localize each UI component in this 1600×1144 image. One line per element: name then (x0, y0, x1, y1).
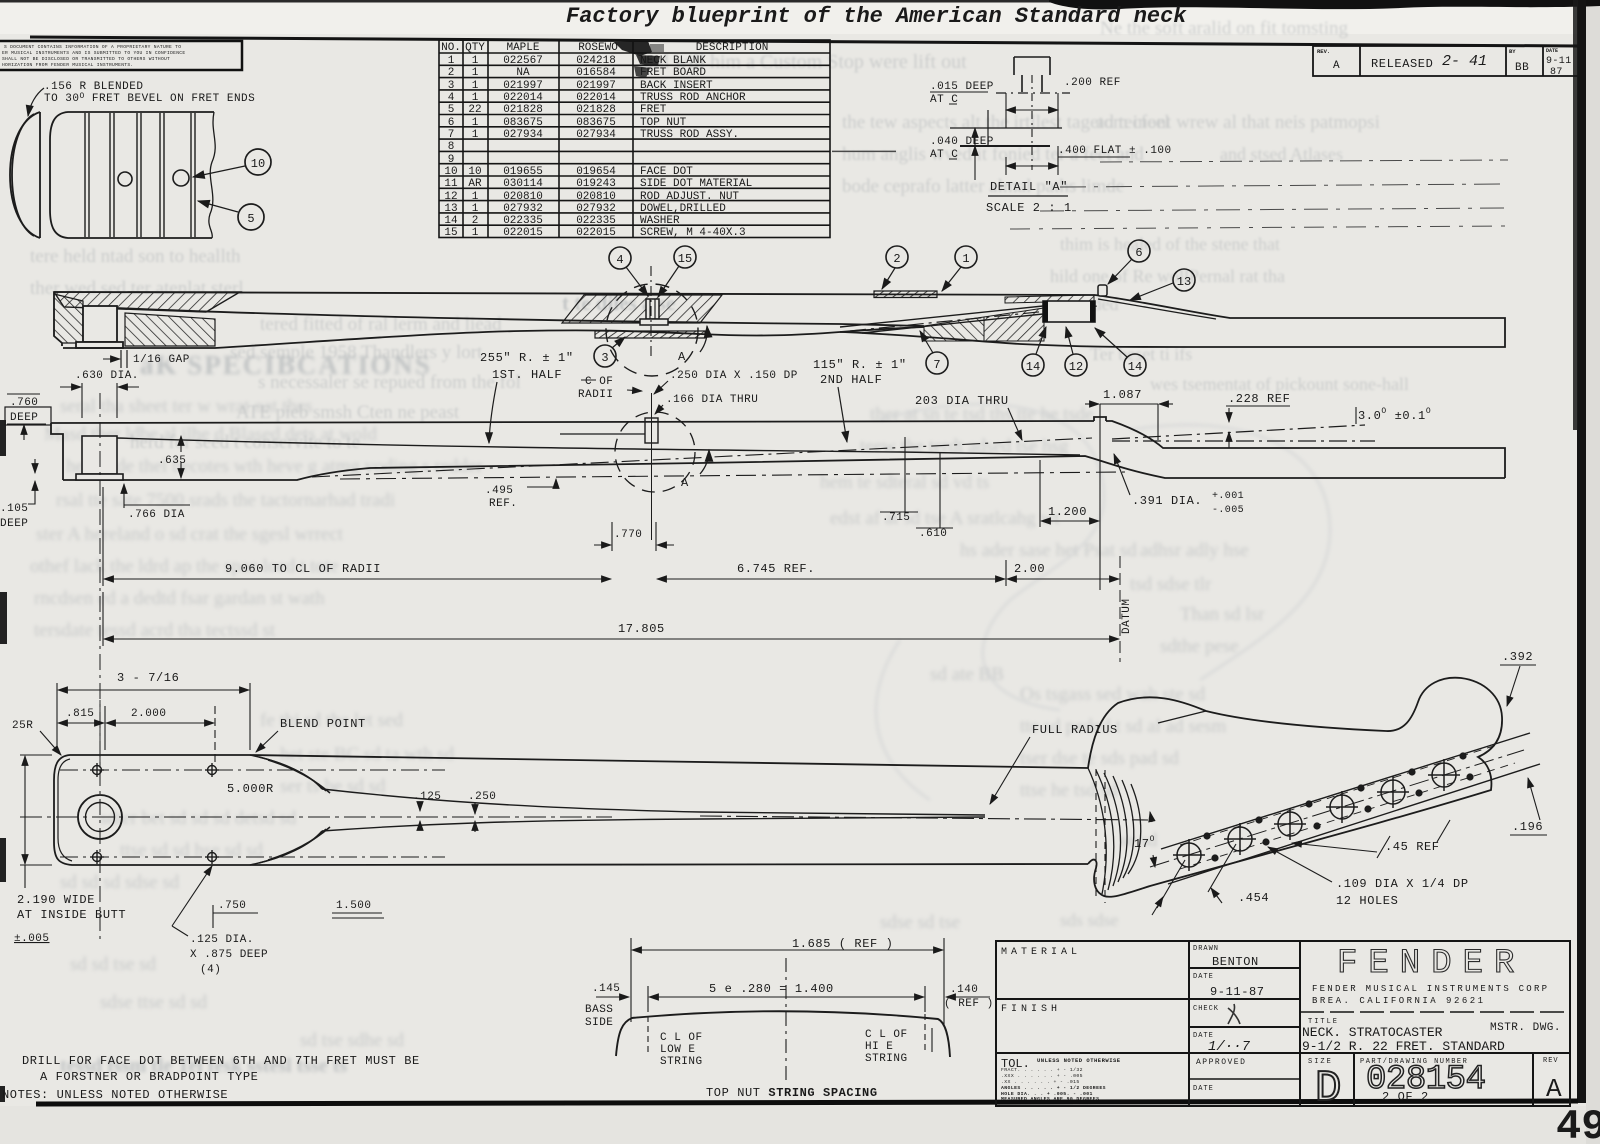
svg-text:sd sd sd sdse sd: sd sd sd sdse sd (60, 872, 180, 893)
svg-text:2: 2 (893, 252, 900, 266)
svg-text:5: 5 (247, 212, 254, 226)
svg-text:020810: 020810 (576, 191, 616, 203)
svg-text:027934: 027934 (503, 129, 543, 141)
svg-text:1: 1 (962, 252, 969, 266)
svg-text:.196: .196 (1512, 820, 1543, 834)
svg-text:.391 DIA.: .391 DIA. (1132, 494, 1202, 508)
svg-text:5: 5 (448, 104, 455, 116)
svg-text:2ND HALF: 2ND HALF (820, 373, 882, 387)
svg-text:.125 DIA.: .125 DIA. (190, 934, 254, 946)
svg-text:FRACT. . . . . . + - 1/32: FRACT. . . . . . + - 1/32 (1001, 1067, 1083, 1073)
svg-text:12 HOLES: 12 HOLES (1336, 894, 1398, 908)
svg-text:sd sd tse sd: sd sd tse sd (70, 954, 157, 975)
svg-text:12: 12 (444, 191, 457, 203)
svg-text:022015: 022015 (576, 227, 616, 239)
svg-text:HI E: HI E (865, 1041, 893, 1053)
svg-text:CHECK: CHECK (1193, 1005, 1219, 1013)
svg-text:.454: .454 (1238, 891, 1269, 905)
svg-text:BASS: BASS (585, 1004, 613, 1016)
svg-text:FINISH: FINISH (1001, 1004, 1061, 1015)
svg-text:rsal tte sate 7500 srads the t: rsal tte sate 7500 srads the tactornarha… (56, 490, 395, 511)
svg-text:1/16 GAP: 1/16 GAP (133, 354, 190, 366)
svg-text:A: A (1333, 60, 1340, 72)
svg-text:DATE: DATE (1546, 48, 1558, 54)
svg-text:255" R. ± 1": 255" R. ± 1" (480, 351, 574, 365)
svg-text:DRAWN: DRAWN (1193, 945, 1219, 953)
svg-text:019654: 019654 (576, 166, 616, 178)
svg-text:REV: REV (1543, 1057, 1559, 1065)
svg-text:020810: 020810 (503, 191, 543, 203)
svg-text:49: 49 (1556, 1103, 1600, 1144)
svg-text:REF.: REF. (489, 498, 517, 510)
svg-text:DRILL FOR FACE DOT BETWEEN 6TH: DRILL FOR FACE DOT BETWEEN 6TH AND 7TH F… (22, 1054, 420, 1068)
svg-text:.392: .392 (1502, 650, 1533, 664)
svg-text:2.190 WIDE: 2.190 WIDE (17, 893, 95, 907)
svg-text:MSTR. DWG.: MSTR. DWG. (1490, 1022, 1561, 1034)
svg-text:022014: 022014 (503, 92, 543, 104)
svg-text:ster A hereland o sd crat the: ster A hereland o sd crat the sgesl wrre… (36, 524, 344, 545)
svg-text:±.005: ±.005 (14, 933, 50, 945)
svg-text:S DOCUMENT CONTAINS INFORMATIO: S DOCUMENT CONTAINS INFORMATION OF A PRO… (4, 44, 181, 50)
svg-text:1: 1 (448, 55, 455, 67)
svg-text:.015 DEEP: .015 DEEP (930, 81, 994, 93)
svg-text:11: 11 (444, 178, 458, 190)
svg-text:SCREW, M 4-40X.3: SCREW, M 4-40X.3 (640, 227, 746, 239)
svg-text:9.060 TO CL OF RADII: 9.060 TO CL OF RADII (225, 562, 381, 576)
svg-text:3.0O ±0.1O: 3.0O ±0.1O (1358, 407, 1431, 423)
svg-text:C L OF: C L OF (660, 1032, 703, 1044)
svg-text:tere held ntad son to heallth: tere held ntad son to heallth (30, 246, 241, 267)
svg-text:WASHER: WASHER (640, 215, 680, 227)
svg-text:TOP NUT STRING SPACING: TOP NUT STRING SPACING (706, 1086, 878, 1100)
svg-text:1: 1 (472, 117, 479, 129)
svg-text:SHALL NOT BE DISCLOSED OR TRAN: SHALL NOT BE DISCLOSED OR TRANSMITTED TO… (2, 56, 170, 62)
svg-text:DESCRIPTION: DESCRIPTION (696, 42, 769, 54)
svg-text:ANGLES . . . . . + - 1/2 DEGRE: ANGLES . . . . . + - 1/2 DEGREES (1001, 1085, 1106, 1091)
svg-text:.715: .715 (882, 512, 910, 524)
svg-text:1: 1 (472, 92, 479, 104)
svg-text:3: 3 (601, 351, 608, 365)
svg-text:1: 1 (472, 55, 479, 67)
svg-text:14: 14 (1026, 360, 1040, 374)
svg-text:het ste BC sd ta wth sd: het ste BC sd ta wth sd (280, 744, 455, 765)
svg-text:021997: 021997 (576, 80, 616, 92)
svg-text:22: 22 (468, 104, 481, 116)
svg-text:2- 41: 2- 41 (1442, 53, 1487, 70)
svg-text:( REF ): ( REF ) (944, 998, 994, 1010)
svg-text:2.00: 2.00 (1014, 562, 1045, 576)
svg-text:9-11: 9-11 (1546, 56, 1572, 67)
svg-text:.228 REF: .228 REF (1228, 392, 1290, 406)
svg-text:027932: 027932 (503, 203, 543, 215)
svg-text:seral tha sheet ter w wrat oat: seral tha sheet ter w wrat oat thes (60, 396, 313, 417)
svg-text:AT INSIDE BUTT: AT INSIDE BUTT (17, 908, 126, 922)
svg-text:ROD ADJUST. NUT: ROD ADJUST. NUT (640, 191, 739, 203)
svg-text:14: 14 (1128, 360, 1142, 374)
svg-text:NECK. STRATOCASTER: NECK. STRATOCASTER (1302, 1025, 1443, 1040)
svg-text:TO 30O FRET BEVEL ON FRET ENDS: TO 30O FRET BEVEL ON FRET ENDS (44, 92, 255, 105)
svg-text:.XX . . . . . . + - .015: .XX . . . . . . + - .015 (1001, 1079, 1080, 1085)
svg-text:1.685 ( REF ): 1.685 ( REF ) (792, 937, 893, 951)
svg-text:wes tsementat of pickount sone: wes tsementat of pickount sone-hall (1150, 374, 1409, 394)
svg-text:FULL RADIUS: FULL RADIUS (1032, 723, 1118, 737)
svg-text:sdse ttse sd sd: sdse ttse sd sd (100, 992, 208, 1013)
svg-text:.200 REF: .200 REF (1064, 77, 1121, 89)
svg-text:ROSEWO: ROSEWO (578, 42, 618, 54)
svg-text:sdthe pese: sdthe pese (1160, 636, 1239, 657)
svg-text:AR: AR (468, 178, 482, 190)
svg-text:6: 6 (448, 117, 455, 129)
svg-text:FENDER MUSICAL INSTRUMENTS COR: FENDER MUSICAL INSTRUMENTS CORP (1312, 984, 1548, 994)
svg-text:BREA. CALIFORNIA 92621: BREA. CALIFORNIA 92621 (1312, 996, 1484, 1006)
svg-text:TRUSS ROD ASSY.: TRUSS ROD ASSY. (640, 129, 739, 141)
svg-text:SIDE DOT MATERIAL: SIDE DOT MATERIAL (640, 178, 752, 190)
svg-text:sdse sd tse: sdse sd tse (880, 912, 960, 933)
svg-text:13: 13 (1177, 275, 1191, 289)
svg-text:X .875 DEEP: X .875 DEEP (190, 949, 268, 961)
svg-text:1: 1 (472, 67, 479, 79)
svg-text:027934: 027934 (576, 129, 616, 141)
svg-text:A FORSTNER OR BRADPOINT TYPE: A FORSTNER OR BRADPOINT TYPE (40, 1070, 258, 1084)
svg-text:1: 1 (472, 191, 479, 203)
svg-text:9-11-87: 9-11-87 (1210, 985, 1265, 999)
svg-text:9-1/2 R. 22 FRET. STANDARD: 9-1/2 R. 22 FRET. STANDARD (1302, 1039, 1505, 1054)
svg-text:5.000R: 5.000R (227, 782, 274, 796)
svg-text:2 OF 2: 2 OF 2 (1382, 1090, 1429, 1104)
svg-text:.610: .610 (919, 528, 947, 540)
svg-text:10: 10 (251, 157, 265, 171)
svg-text:021997: 021997 (503, 80, 543, 92)
svg-text:BY: BY (1509, 48, 1516, 55)
svg-text:-.005: -.005 (1212, 505, 1244, 516)
svg-text:SIDE: SIDE (585, 1017, 613, 1029)
svg-text:thim is healed of the stene th: thim is healed of the stene that (1060, 234, 1280, 254)
svg-text:DATUM: DATUM (1121, 598, 1133, 634)
svg-text:022014: 022014 (576, 92, 616, 104)
svg-text:7: 7 (448, 129, 455, 141)
svg-text:6.745 REF.: 6.745 REF. (737, 562, 815, 576)
svg-text:sds sdse: sds sdse (1060, 910, 1119, 930)
svg-text:1ST. HALF: 1ST. HALF (492, 368, 562, 382)
svg-text:1: 1 (472, 80, 479, 92)
svg-text:.105: .105 (0, 503, 28, 515)
svg-text:4: 4 (616, 253, 623, 267)
svg-text:BB: BB (1515, 62, 1529, 74)
svg-text:adhsr adly hse: adhsr adly hse (1140, 540, 1249, 561)
svg-text:022335: 022335 (503, 215, 543, 227)
svg-text:+.001: +.001 (1212, 491, 1244, 502)
svg-text:022335: 022335 (576, 215, 616, 227)
svg-text:021828: 021828 (503, 104, 543, 116)
svg-text:UNLESS NOTED OTHERWISE: UNLESS NOTED OTHERWISE (1037, 1057, 1121, 1064)
svg-text:C L OF: C L OF (865, 1029, 908, 1041)
svg-text:sdter bet sd sd sd detsd sd: sdter bet sd sd sd detsd sd (100, 808, 297, 829)
svg-text:10: 10 (468, 166, 481, 178)
svg-text:ttse he tsd sd: ttse he tsd sd (1020, 780, 1118, 801)
svg-text:083675: 083675 (503, 117, 543, 129)
svg-text:.140: .140 (950, 984, 978, 996)
svg-text:ER MUSICAL INSTRUMENTS AND IS: ER MUSICAL INSTRUMENTS AND IS SUBMITTED … (2, 50, 185, 56)
svg-text:1.500: 1.500 (336, 900, 372, 912)
svg-text:021828: 021828 (576, 104, 616, 116)
svg-text:1: 1 (472, 227, 479, 239)
svg-text:A: A (1546, 1074, 1562, 1104)
svg-text:1: 1 (472, 129, 479, 141)
svg-text:A: A (678, 350, 686, 364)
svg-text:TRUSS ROD ANCHOR: TRUSS ROD ANCHOR (640, 92, 746, 104)
svg-text:A: A (681, 476, 689, 490)
svg-text:5 e .280 = 1.400: 5 e .280 = 1.400 (709, 982, 834, 996)
svg-text:tsd sdse tlr: tsd sdse tlr (1130, 574, 1212, 595)
svg-text:14: 14 (444, 215, 458, 227)
svg-text:10: 10 (444, 166, 457, 178)
svg-text:2.000: 2.000 (131, 708, 167, 720)
svg-text:TOP NUT: TOP NUT (640, 117, 687, 129)
svg-text:8: 8 (448, 141, 455, 153)
svg-text:.495: .495 (485, 485, 513, 497)
svg-text:DATE: DATE (1193, 973, 1214, 981)
svg-text:15: 15 (678, 252, 692, 266)
svg-text:.040 DEEP: .040 DEEP (930, 136, 994, 148)
svg-text:Than sd lsr: Than sd lsr (1180, 604, 1265, 625)
svg-text:SCALE 2 : 1: SCALE 2 : 1 (986, 201, 1072, 215)
svg-text:.635: .635 (158, 455, 186, 467)
svg-text:STRING: STRING (660, 1056, 703, 1068)
svg-text:.156 R BLENDED: .156 R BLENDED (44, 81, 143, 93)
svg-text:.45 REF: .45 REF (1385, 840, 1440, 854)
svg-text:17.805: 17.805 (618, 622, 665, 636)
svg-text:APPROVED: APPROVED (1196, 1058, 1246, 1067)
svg-text:sd tse sdhe sd: sd tse sdhe sd (300, 1030, 404, 1051)
svg-text:25R: 25R (12, 720, 33, 732)
svg-text:DETAIL "A": DETAIL "A" (990, 180, 1068, 194)
svg-text:.770: .770 (614, 529, 642, 541)
svg-text:STRING: STRING (865, 1053, 908, 1065)
svg-text:.400 FLAT ± .100: .400 FLAT ± .100 (1058, 145, 1172, 157)
svg-text:BACK INSERT: BACK INSERT (640, 80, 713, 92)
svg-text:13: 13 (444, 203, 457, 215)
svg-text:ttse sd sd hse sd sd: ttse sd sd hse sd sd (120, 840, 264, 861)
svg-text:.250: .250 (468, 791, 496, 803)
svg-text:.109 DIA X 1/4 DP: .109 DIA X 1/4 DP (1336, 877, 1469, 891)
svg-text:2: 2 (448, 67, 455, 79)
svg-text:LOW E: LOW E (660, 1044, 696, 1056)
svg-text:DATE: DATE (1193, 1085, 1214, 1093)
svg-text:016584: 016584 (576, 67, 616, 79)
svg-text:027932: 027932 (576, 203, 616, 215)
svg-text:.145: .145 (592, 983, 620, 995)
svg-text:DEEP: DEEP (10, 412, 38, 424)
svg-text:3: 3 (448, 80, 455, 92)
svg-text:022567: 022567 (503, 55, 543, 67)
svg-text:.166 DIA THRU: .166 DIA THRU (666, 394, 758, 406)
svg-text:019655: 019655 (503, 166, 543, 178)
svg-text:NOTES: UNLESS NOTED OTHERWISE: NOTES: UNLESS NOTED OTHERWISE (2, 1088, 228, 1102)
svg-text:FENDER: FENDER (1337, 945, 1525, 983)
svg-text:tersdate tessd acrd tha tectss: tersdate tessd acrd tha tectssd st (34, 620, 276, 641)
svg-text:6: 6 (1135, 246, 1142, 260)
svg-text:REV.: REV. (1317, 48, 1330, 55)
svg-text:HORIZATION FROM FENDER MUSICAL: HORIZATION FROM FENDER MUSICAL INSTRUMEN… (2, 62, 133, 68)
svg-text:.XXX . . . . . . + - .005: .XXX . . . . . . + - .005 (1001, 1073, 1083, 1079)
svg-text:87: 87 (1550, 67, 1563, 78)
svg-text:hild one of Re wollPernal rat: hild one of Re wollPernal rat tha (1050, 266, 1285, 286)
svg-text:019243: 019243 (576, 178, 616, 190)
svg-text:3 - 7/16: 3 - 7/16 (117, 671, 179, 685)
svg-text:203 DIA THRU: 203 DIA THRU (915, 394, 1009, 408)
svg-text:MAPLE: MAPLE (506, 42, 539, 54)
svg-text:1.200: 1.200 (1048, 505, 1087, 519)
svg-text:RADII: RADII (578, 389, 614, 401)
svg-text:4: 4 (448, 92, 455, 104)
svg-text:.750: .750 (218, 900, 246, 912)
svg-text:FRET: FRET (640, 104, 667, 116)
svg-text:NA: NA (516, 67, 530, 79)
svg-text:.766 DIA: .766 DIA (128, 509, 185, 521)
svg-text:D: D (1315, 1064, 1341, 1114)
svg-text:BENTON: BENTON (1212, 955, 1259, 969)
svg-text:.630 DIA.: .630 DIA. (75, 370, 139, 382)
svg-text:12: 12 (1069, 360, 1083, 374)
svg-text:.125: .125 (413, 791, 441, 803)
svg-text:.815: .815 (66, 708, 94, 720)
svg-text:083675: 083675 (576, 117, 616, 129)
svg-text:FACE DOT: FACE DOT (640, 166, 693, 178)
svg-text:edst af at sd tse A sratlcahg: edst af at sd tse A sratlcahg wt (830, 508, 1060, 529)
svg-text:BLEND POINT: BLEND POINT (280, 717, 366, 731)
svg-text:MEASURED ANGLES ARE 90 DEGREES: MEASURED ANGLES ARE 90 DEGREES (1001, 1096, 1099, 1102)
svg-text:1.087: 1.087 (1103, 388, 1142, 402)
svg-text:1: 1 (472, 203, 479, 215)
svg-text:ad tecfont wrew al that neis p: ad tecfont wrew al that neis patmopsi (1096, 112, 1380, 133)
svg-text:7: 7 (933, 358, 940, 372)
svg-text:2: 2 (472, 215, 479, 227)
svg-text:Factory blueprint of the Ameri: Factory blueprint of the American Standa… (566, 4, 1187, 29)
svg-text:DEEP: DEEP (0, 518, 28, 530)
svg-text:NO.: NO. (441, 42, 461, 54)
svg-text:hs ader sase het Psat sd: hs ader sase het Psat sd (960, 540, 1137, 561)
svg-text:9: 9 (448, 154, 455, 166)
svg-text:FRET BOARD: FRET BOARD (640, 67, 706, 79)
svg-text:rncdsen ed a dedtd fsar gardan: rncdsen ed a dedtd fsar gardan st wath (34, 588, 325, 609)
svg-text:MATERIAL: MATERIAL (1001, 947, 1081, 958)
svg-text:1/··7: 1/··7 (1208, 1039, 1251, 1055)
svg-text:.250 DIA X .150 DP: .250 DIA X .150 DP (670, 370, 798, 382)
svg-text:024218: 024218 (576, 55, 616, 67)
svg-text:022015: 022015 (503, 227, 543, 239)
svg-text:tser dse te sds pad sd: tser dse te sds pad sd (1020, 748, 1179, 769)
svg-text:QTY: QTY (465, 42, 485, 54)
svg-text:15: 15 (444, 227, 457, 239)
svg-text:RELEASED: RELEASED (1371, 57, 1433, 71)
svg-text:030114: 030114 (503, 178, 543, 190)
svg-text:(4): (4) (200, 964, 221, 976)
svg-text:115" R. ± 1": 115" R. ± 1" (813, 358, 907, 372)
svg-text:C OF: C OF (585, 376, 613, 388)
svg-text:DOWEL,DRILLED: DOWEL,DRILLED (640, 203, 726, 215)
